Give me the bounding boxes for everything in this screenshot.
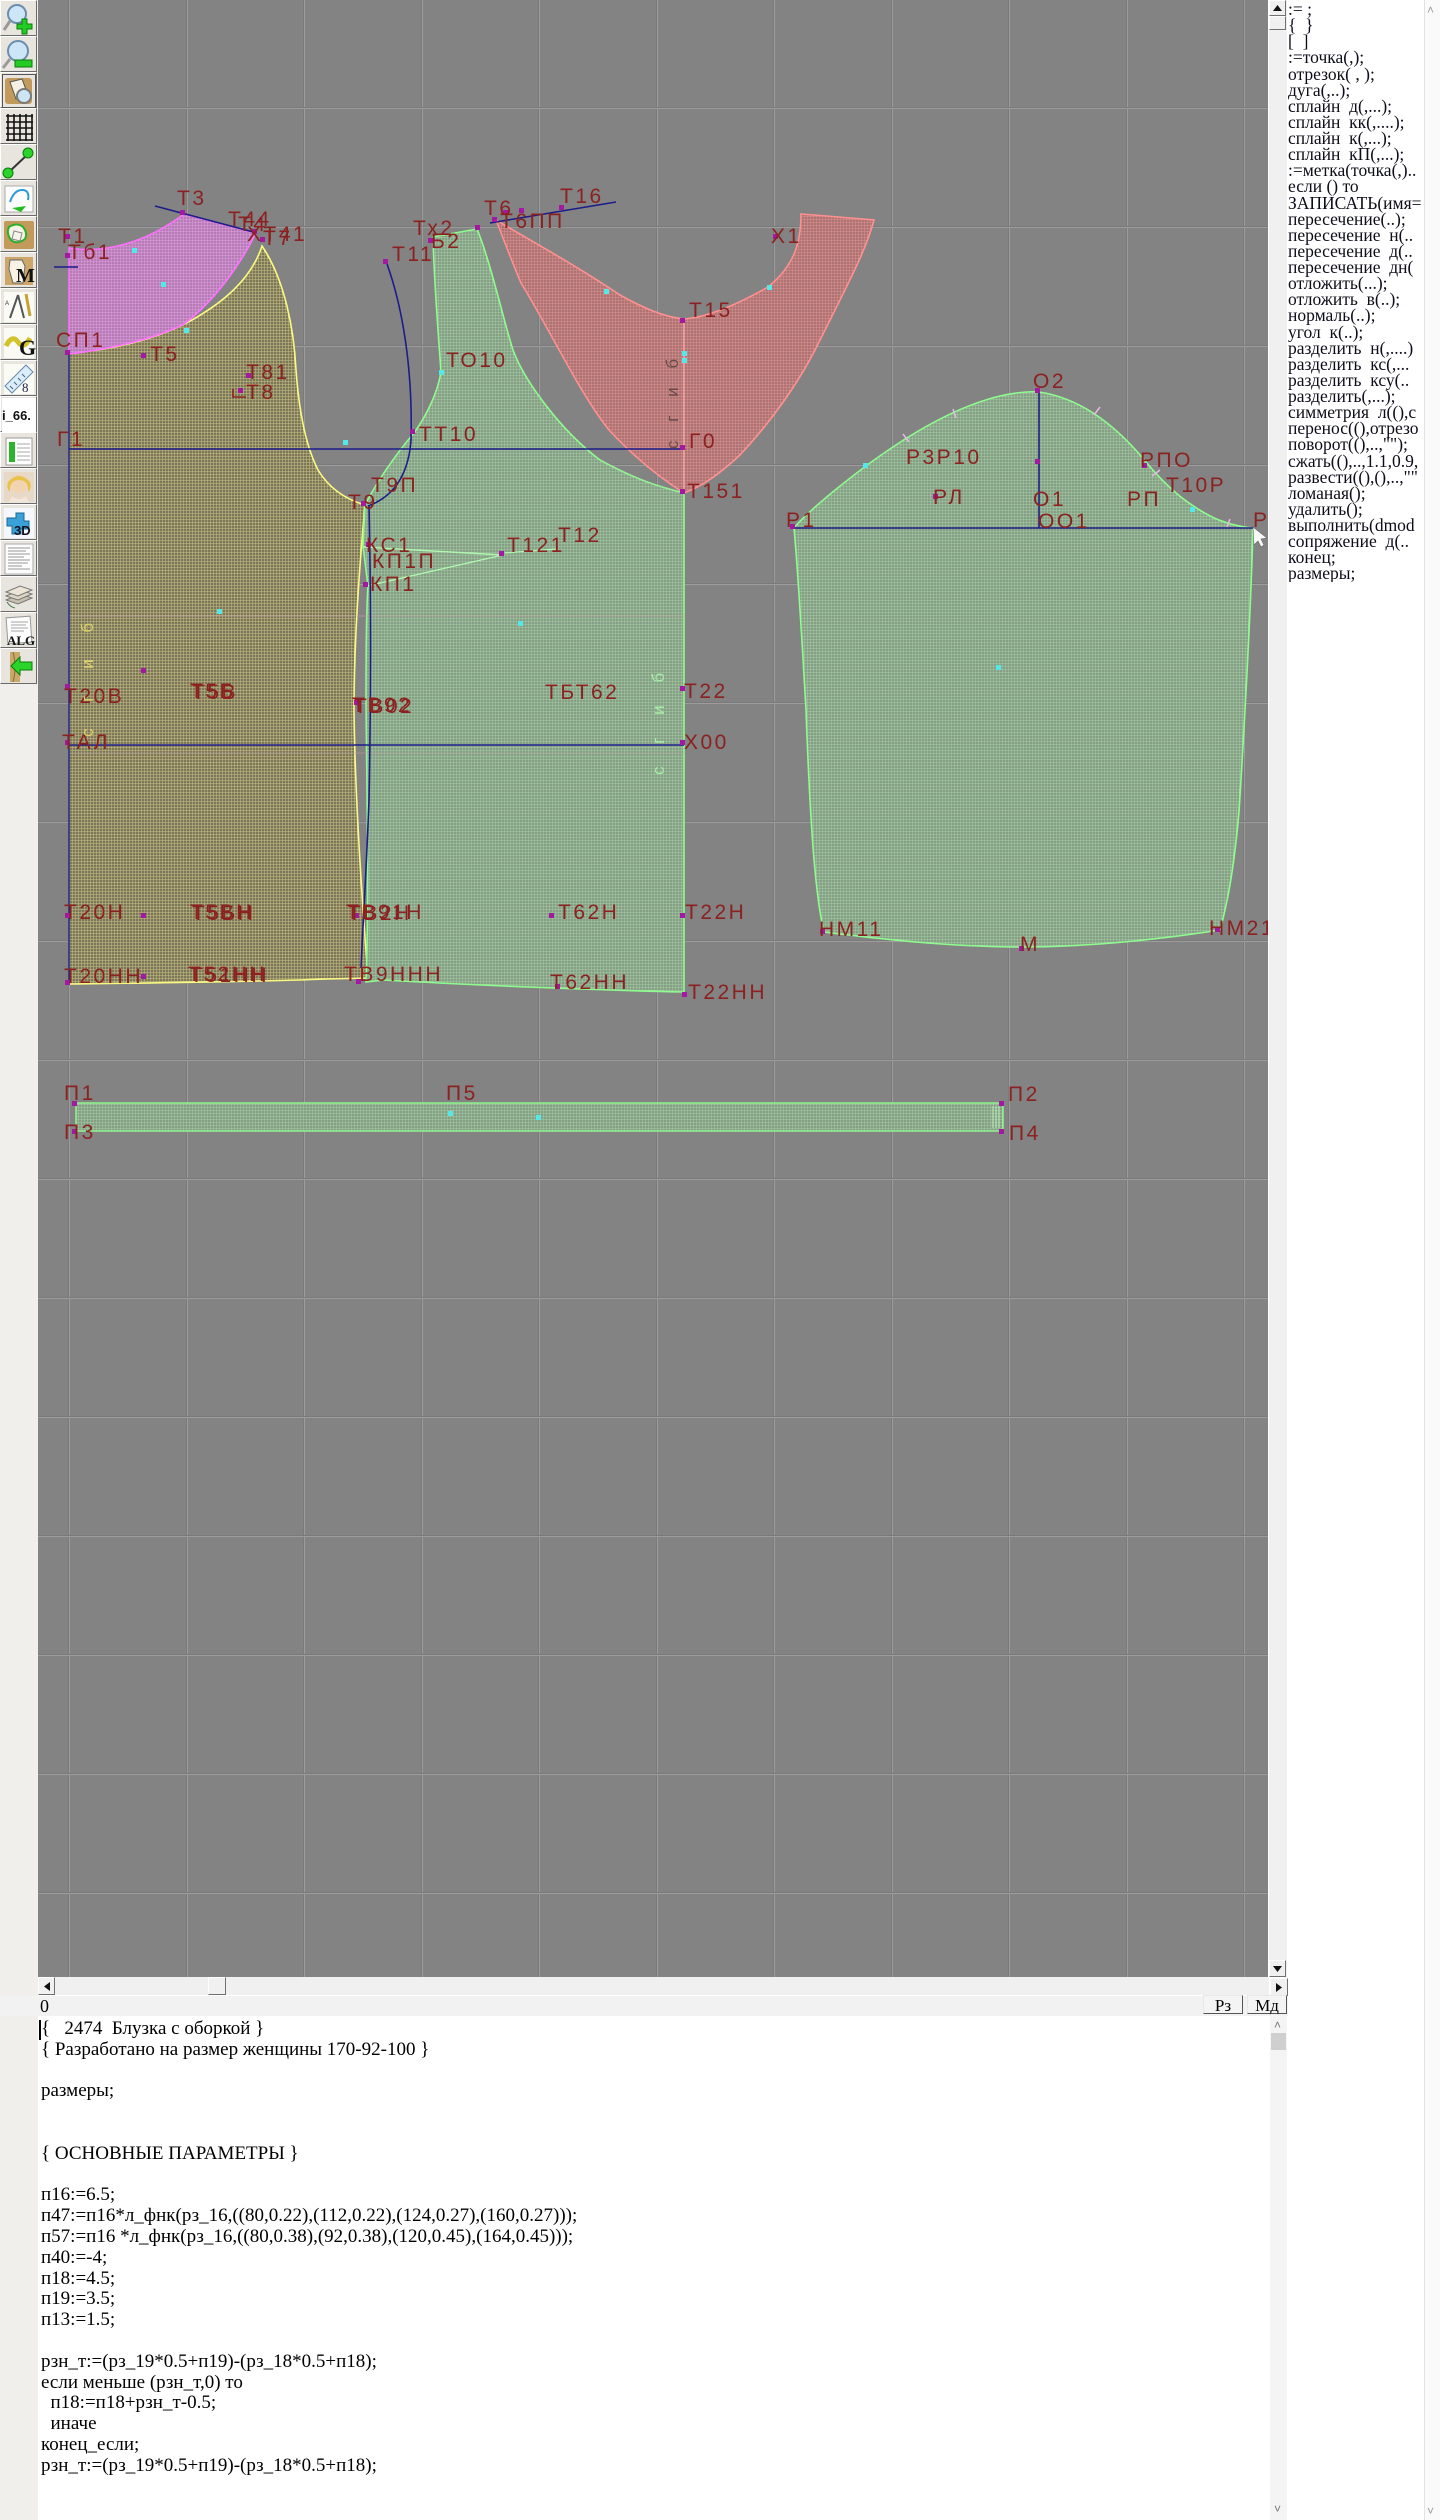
svg-text:НМ11: НМ11 xyxy=(819,918,883,941)
svg-text:Т3: Т3 xyxy=(177,187,207,210)
svg-text:Т15: Т15 xyxy=(689,299,733,322)
svg-text:КП1П: КП1П xyxy=(372,550,436,573)
svg-text:ОО1: ОО1 xyxy=(1038,510,1090,533)
svg-text:Т22: Т22 xyxy=(684,680,728,703)
svg-text:ТБТ62: ТБТ62 xyxy=(545,681,619,704)
svg-text:8: 8 xyxy=(22,380,29,395)
svg-text:G: G xyxy=(19,335,36,360)
svg-text:Р1: Р1 xyxy=(786,509,817,532)
svg-text:Х00: Х00 xyxy=(684,731,729,754)
svg-text:ТО10: ТО10 xyxy=(446,349,508,372)
svg-text:П4: П4 xyxy=(1009,1122,1041,1145)
svg-text:Х1: Х1 xyxy=(771,225,802,248)
svg-text:Г0: Г0 xyxy=(689,430,717,453)
svg-text:П2: П2 xyxy=(1008,1083,1040,1106)
svg-text:Т9: Т9 xyxy=(348,491,378,514)
svg-text:Т8: Т8 xyxy=(246,381,276,404)
svg-text:РЛ: РЛ xyxy=(933,486,965,509)
svg-text:Т20Н: Т20Н xyxy=(64,901,125,924)
svg-text:A: A xyxy=(5,301,9,307)
svg-text:Т6ПП: Т6ПП xyxy=(500,210,565,233)
svg-text:П1: П1 xyxy=(64,1082,96,1105)
svg-text:Т11: Т11 xyxy=(392,243,434,266)
svg-text:ТВ2Н: ТВ2Н xyxy=(348,902,412,925)
svg-text:Т22Н: Т22Н xyxy=(685,901,746,924)
svg-text:Г1: Г1 xyxy=(57,428,85,451)
svg-text:Тб1: Тб1 xyxy=(68,241,112,264)
svg-text:П3: П3 xyxy=(64,1121,96,1144)
svg-text:Т12: Т12 xyxy=(558,524,602,547)
svg-text:ТТ10: ТТ10 xyxy=(419,423,478,446)
svg-text:ALG: ALG xyxy=(7,633,35,648)
svg-text:ТВ02: ТВ02 xyxy=(354,695,414,718)
svg-text:Б2: Б2 xyxy=(431,230,461,253)
svg-text:с г и б: с г и б xyxy=(663,352,682,449)
svg-text:КП1: КП1 xyxy=(370,573,417,596)
svg-text:РП: РП xyxy=(1127,488,1161,511)
svg-text:Т51НН: Т51НН xyxy=(190,964,269,987)
svg-text:M: M xyxy=(16,265,35,287)
svg-text:с г и б: с г и б xyxy=(78,612,97,737)
svg-text:Т5БН: Т5БН xyxy=(192,902,255,925)
svg-text:Т62НН: Т62НН xyxy=(550,971,629,994)
svg-text:Т22НН: Т22НН xyxy=(688,981,767,1004)
svg-text:СП1: СП1 xyxy=(56,329,105,352)
svg-text:Т5: Т5 xyxy=(150,343,180,366)
svg-text:О1: О1 xyxy=(1033,488,1066,511)
svg-text:П5: П5 xyxy=(446,1082,478,1105)
svg-text:Т20НН: Т20НН xyxy=(64,965,143,988)
svg-text:с г и б: с г и б xyxy=(649,664,668,775)
svg-text:Т5В: Т5В xyxy=(192,681,238,704)
svg-text:Р3Р10: Р3Р10 xyxy=(906,446,982,469)
svg-text:Т121: Т121 xyxy=(507,534,565,557)
svg-text:Т7: Т7 xyxy=(263,227,293,250)
svg-text:Т151: Т151 xyxy=(687,480,745,503)
svg-text:РПО: РПО xyxy=(1140,449,1193,472)
svg-text:Т9П: Т9П xyxy=(371,474,418,497)
svg-text:ТВ9ННН: ТВ9ННН xyxy=(344,963,443,986)
svg-text:О2: О2 xyxy=(1033,370,1066,393)
svg-text:Т62Н: Т62Н xyxy=(558,901,619,924)
svg-text:3D: 3D xyxy=(14,523,31,538)
svg-text:НМ21: НМ21 xyxy=(1209,917,1268,940)
svg-text:М: М xyxy=(1020,933,1040,956)
svg-text:Т16: Т16 xyxy=(560,185,604,208)
svg-text:Т10Р: Т10Р xyxy=(1166,474,1226,497)
